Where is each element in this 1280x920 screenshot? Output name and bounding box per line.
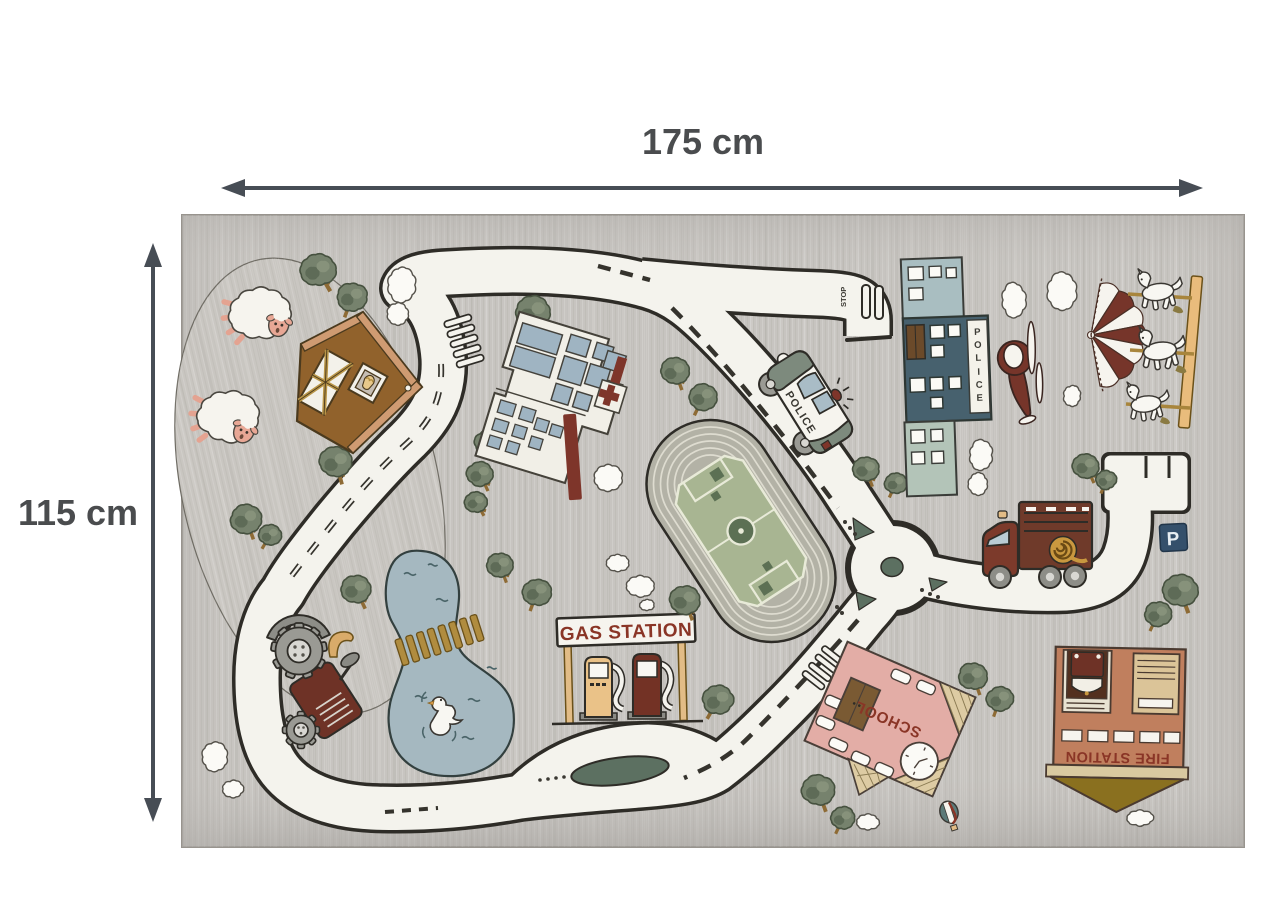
svg-text:C: C: [976, 380, 983, 391]
svg-text:P: P: [974, 327, 981, 338]
svg-text:L: L: [975, 353, 981, 364]
svg-text:STOP: STOP: [839, 287, 848, 307]
svg-text:P: P: [1166, 529, 1180, 551]
svg-text:115 cm: 115 cm: [18, 492, 138, 533]
svg-text:175 cm: 175 cm: [642, 121, 764, 162]
svg-text:E: E: [976, 393, 983, 404]
svg-text:O: O: [974, 340, 982, 351]
svg-text:I: I: [977, 367, 980, 378]
svg-text:FIRE STATION: FIRE STATION: [1065, 748, 1170, 766]
